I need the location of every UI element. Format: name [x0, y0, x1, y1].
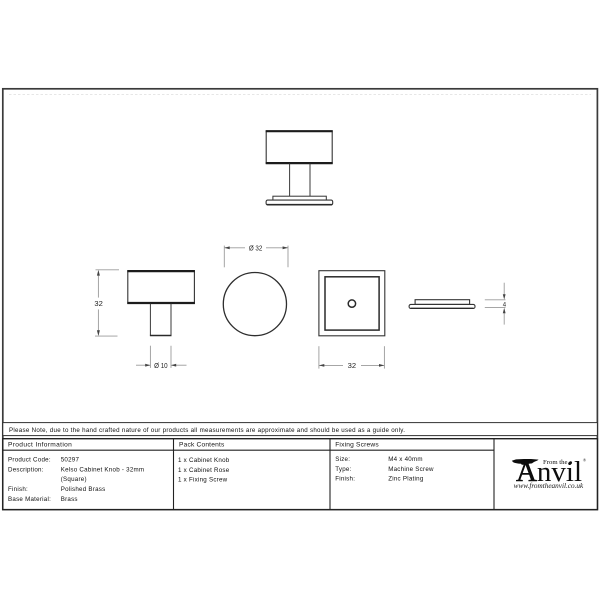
- svg-text:32: 32: [348, 361, 356, 370]
- svg-text:50297: 50297: [61, 456, 80, 463]
- svg-text:Kelso Cabinet Knob - 32mm: Kelso Cabinet Knob - 32mm: [61, 466, 145, 473]
- svg-text:32: 32: [94, 299, 102, 308]
- svg-text:Ø 10: Ø 10: [154, 361, 168, 370]
- svg-text:Description:: Description:: [8, 466, 44, 473]
- svg-text:Base Material:: Base Material:: [8, 496, 51, 503]
- svg-text:Fixing Screws: Fixing Screws: [335, 442, 379, 449]
- svg-text:Product Information: Product Information: [8, 442, 72, 449]
- svg-text:1 x Cabinet Knob: 1 x Cabinet Knob: [178, 457, 230, 464]
- svg-text:®: ®: [583, 457, 587, 462]
- svg-text:Type:: Type:: [335, 466, 351, 473]
- svg-text:Ø 32: Ø 32: [249, 243, 263, 252]
- svg-text:Brass: Brass: [61, 496, 78, 503]
- svg-text:(Square): (Square): [61, 476, 87, 483]
- svg-text:Size:: Size:: [335, 456, 350, 463]
- svg-text:1 x Fixing Screw: 1 x Fixing Screw: [178, 477, 228, 484]
- svg-text:Zinc Plating: Zinc Plating: [388, 475, 424, 482]
- svg-text:Finish:: Finish:: [8, 486, 28, 493]
- svg-text:Machine Screw: Machine Screw: [388, 466, 434, 473]
- svg-text:M4 x 40mm: M4 x 40mm: [388, 456, 423, 463]
- svg-text:Product Code:: Product Code:: [8, 456, 51, 463]
- svg-text:www.fromtheanvil.co.uk: www.fromtheanvil.co.uk: [514, 483, 584, 490]
- svg-text:Polished Brass: Polished Brass: [61, 486, 106, 493]
- svg-text:Finish:: Finish:: [335, 475, 355, 482]
- svg-text:1 x Cabinet Rose: 1 x Cabinet Rose: [178, 467, 230, 474]
- svg-text:Please Note, due to the hand c: Please Note, due to the hand crafted nat…: [9, 427, 405, 434]
- svg-text:Pack Contents: Pack Contents: [179, 442, 225, 449]
- svg-text:From the: From the: [543, 460, 568, 466]
